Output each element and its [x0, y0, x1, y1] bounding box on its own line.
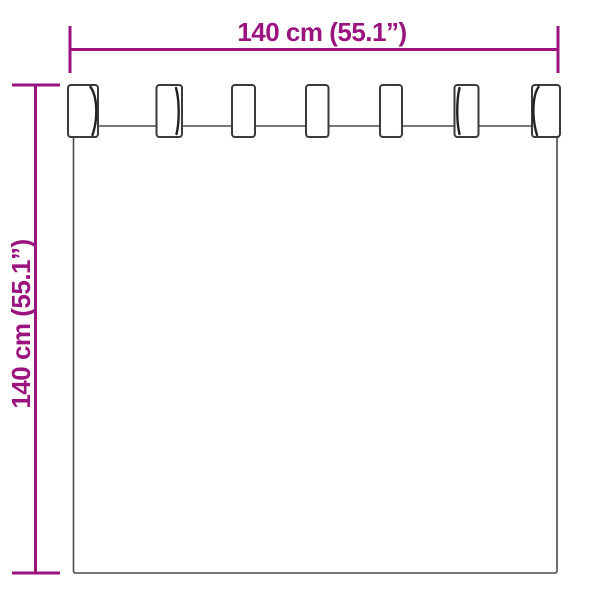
width-dimension-label: 140 cm (55.1”) [237, 17, 406, 47]
curtain-tab-3 [232, 85, 255, 137]
width-dimension: 140 cm (55.1”) [70, 17, 558, 73]
height-dimension: 140 cm (55.1”) [6, 85, 60, 573]
product-dimension-image: 140 cm (55.1”) 140 cm (55.1”) [0, 0, 600, 600]
curtain-drawing [68, 85, 560, 573]
curtain-tab-4 [306, 85, 329, 137]
height-dimension-label: 140 cm (55.1”) [6, 239, 36, 408]
curtain-panel-outline [74, 126, 558, 573]
curtain-dimension-diagram: 140 cm (55.1”) 140 cm (55.1”) [0, 0, 600, 600]
curtain-tab-5 [380, 85, 402, 137]
